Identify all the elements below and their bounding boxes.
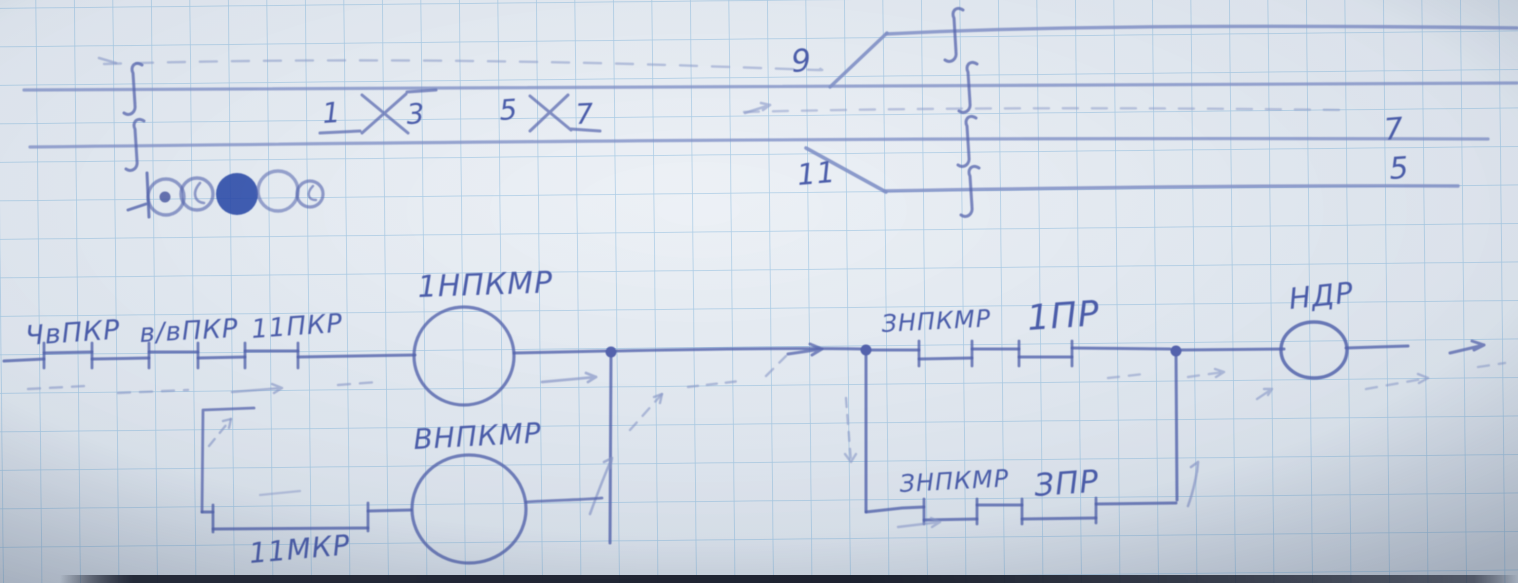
- photo-bottom-edge-shade: [60, 575, 1518, 583]
- sketch-canvas: 1 3 5 7 9 11 7 5 ЧвПКР в/вПКР 11ПКР 1НПК…: [0, 0, 1518, 583]
- notebook-photo: 1 3 5 7 9 11 7 5 ЧвПКР в/вПКР 11ПКР 1НПК…: [0, 0, 1518, 583]
- photo-vignette: [0, 0, 1518, 583]
